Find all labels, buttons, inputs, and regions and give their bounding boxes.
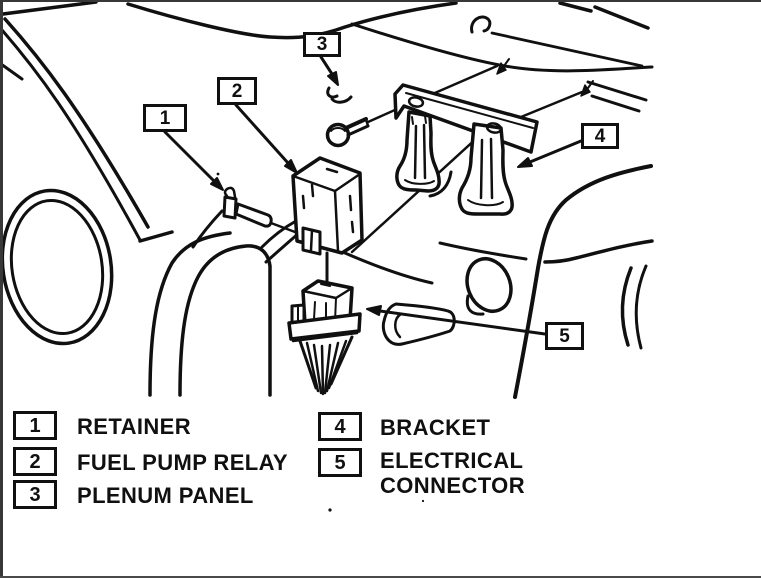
callout-box-2-fuel-pump-relay: 2 [217,77,257,105]
legend-number-box: 4 [318,412,362,441]
legend-label: ELECTRICAL CONNECTOR [380,448,540,498]
callout-number: 4 [595,127,606,146]
legend-item-electrical-connector: 5 ELECTRICAL CONNECTOR [318,448,540,498]
callout-box-5-electrical-connector: 5 [545,322,584,350]
callout-number: 3 [317,35,328,54]
legend-label: FUEL PUMP RELAY [77,450,288,475]
legend-label: PLENUM PANEL [77,483,254,508]
callout-box-4-bracket: 4 [581,123,619,149]
callout-number: 5 [559,327,570,346]
legend-number: 1 [29,416,40,436]
legend-item-fuel-pump-relay: 2 FUEL PUMP RELAY [13,447,288,476]
legend-number-box: 5 [318,448,362,477]
legend-item-retainer: 1 RETAINER [13,411,288,440]
legend-number-box: 3 [13,480,57,509]
callout-number: 2 [232,82,243,101]
legend-number: 5 [334,453,345,473]
legend-number: 2 [29,452,40,472]
legend-item-plenum-panel: 3 PLENUM PANEL [13,480,288,509]
legend-number: 3 [29,485,40,505]
service-manual-diagram-page: 1 2 3 4 5 1 RETAINER 2 FUEL PUMP RELAY 3 [0,0,761,578]
callout-box-1-retainer: 1 [143,104,187,132]
legend-label: BRACKET [380,415,490,440]
legend-number: 4 [334,417,345,437]
page-edge-top [0,0,761,2]
callout-box-3-plenum-panel: 3 [303,32,341,57]
legend-column-right: 4 BRACKET 5 ELECTRICAL CONNECTOR [318,412,540,505]
legend-label: RETAINER [77,414,191,439]
legend-number-box: 2 [13,447,57,476]
callout-number: 1 [160,109,171,128]
legend-number-box: 1 [13,411,57,440]
legend-column-left: 1 RETAINER 2 FUEL PUMP RELAY 3 PLENUM PA… [13,411,288,516]
legend-item-bracket: 4 BRACKET [318,412,540,441]
page-edge-left [0,0,3,578]
